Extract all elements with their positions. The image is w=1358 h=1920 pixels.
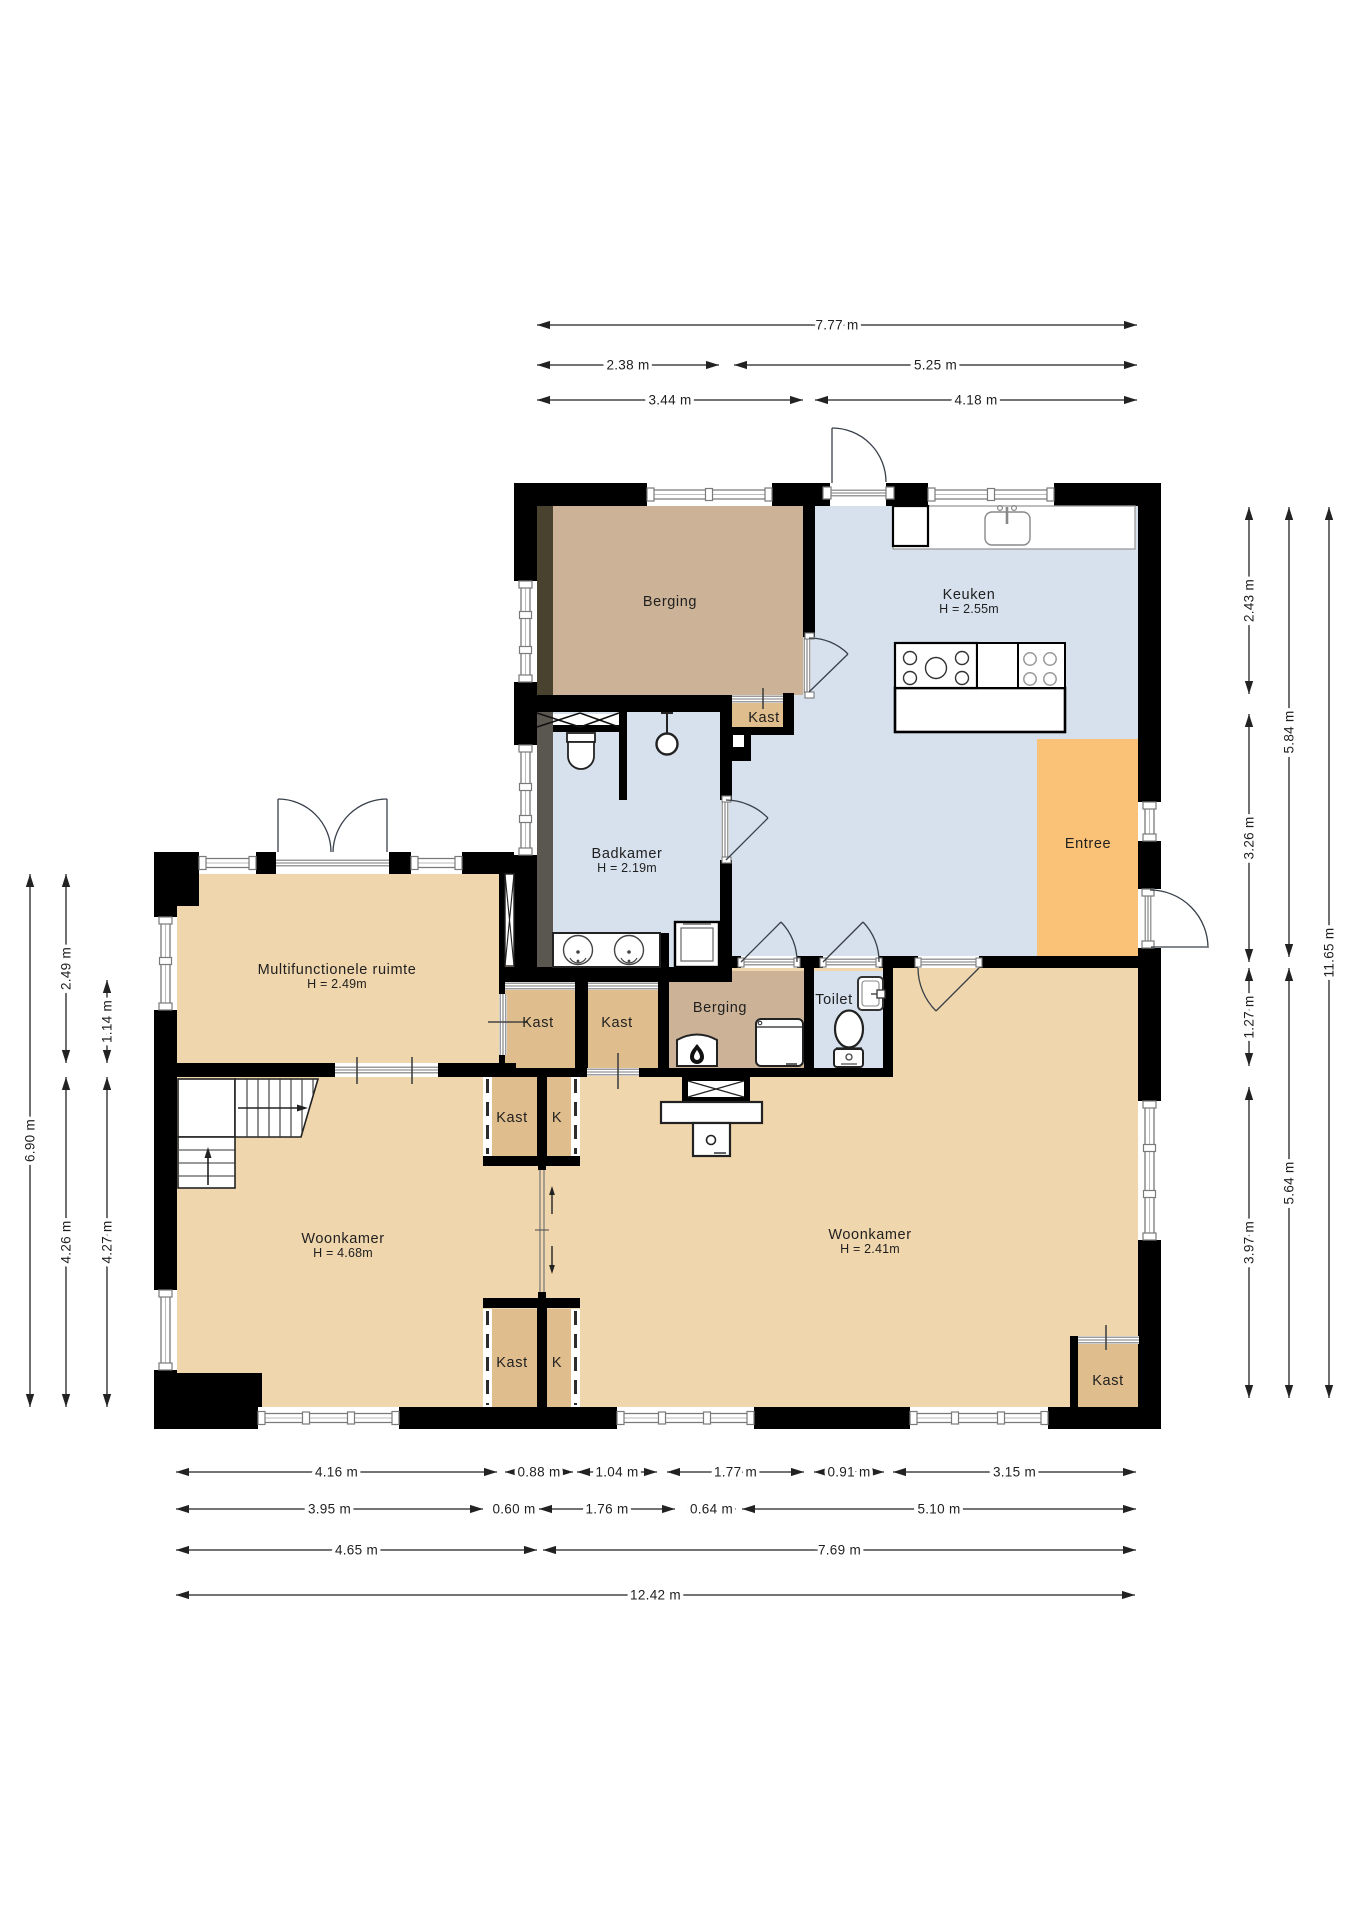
svg-text:3.44 m: 3.44 m [648, 393, 691, 408]
svg-text:Kast: Kast [496, 1110, 527, 1126]
svg-text:Berging: Berging [643, 594, 697, 610]
svg-text:5.10 m: 5.10 m [917, 1502, 960, 1517]
svg-text:5.25 m: 5.25 m [914, 358, 957, 373]
svg-text:5.64 m: 5.64 m [1282, 1161, 1297, 1204]
svg-text:12.42 m: 12.42 m [630, 1588, 681, 1603]
svg-text:1.14 m: 1.14 m [100, 1000, 115, 1043]
svg-text:3.26 m: 3.26 m [1242, 816, 1257, 859]
svg-text:Woonkamer: Woonkamer [828, 1227, 911, 1243]
svg-text:H = 2.55m: H = 2.55m [939, 602, 999, 616]
svg-text:2.38 m: 2.38 m [606, 358, 649, 373]
svg-text:11.65 m: 11.65 m [1322, 928, 1337, 978]
svg-text:Kast: Kast [1092, 1373, 1123, 1389]
svg-text:4.26 m: 4.26 m [59, 1220, 74, 1263]
svg-text:Badkamer: Badkamer [592, 846, 663, 862]
svg-text:0.88 m: 0.88 m [517, 1465, 560, 1480]
svg-text:4.27 m: 4.27 m [100, 1220, 115, 1263]
svg-text:K: K [552, 1355, 562, 1371]
svg-text:1.76 m: 1.76 m [585, 1502, 628, 1517]
svg-text:7.77 m: 7.77 m [815, 318, 858, 333]
svg-text:Kast: Kast [522, 1015, 553, 1031]
svg-text:3.97 m: 3.97 m [1242, 1221, 1257, 1264]
svg-text:0.91 m: 0.91 m [827, 1465, 870, 1480]
svg-text:7.69 m: 7.69 m [818, 1543, 861, 1558]
svg-text:H = 2.19m: H = 2.19m [597, 861, 657, 875]
svg-text:0.64 m: 0.64 m [690, 1502, 733, 1517]
svg-text:Toilet: Toilet [815, 992, 852, 1008]
svg-text:Woonkamer: Woonkamer [301, 1231, 384, 1247]
svg-text:Kast: Kast [496, 1355, 527, 1371]
svg-text:Multifunctionele ruimte: Multifunctionele ruimte [258, 962, 417, 978]
svg-text:2.49 m: 2.49 m [59, 947, 74, 990]
svg-text:0.60 m: 0.60 m [492, 1502, 535, 1517]
svg-text:1.04 m: 1.04 m [595, 1465, 638, 1480]
svg-text:Kast: Kast [748, 710, 779, 726]
svg-text:1.77 m: 1.77 m [714, 1465, 757, 1480]
svg-text:4.65 m: 4.65 m [335, 1543, 378, 1558]
svg-text:6.90 m: 6.90 m [23, 1119, 38, 1162]
svg-text:3.95 m: 3.95 m [308, 1502, 351, 1517]
svg-text:4.18 m: 4.18 m [954, 393, 997, 408]
svg-text:1.27 m: 1.27 m [1242, 995, 1257, 1038]
svg-text:H = 2.49m: H = 2.49m [307, 977, 367, 991]
svg-text:Entree: Entree [1065, 836, 1111, 852]
svg-text:H = 4.68m: H = 4.68m [313, 1246, 373, 1260]
svg-text:4.16 m: 4.16 m [315, 1465, 358, 1480]
svg-text:3.15 m: 3.15 m [993, 1465, 1036, 1480]
svg-text:H = 2.41m: H = 2.41m [840, 1242, 900, 1256]
svg-text:K: K [552, 1110, 562, 1126]
svg-text:Keuken: Keuken [943, 587, 996, 603]
svg-text:5.84 m: 5.84 m [1282, 710, 1297, 753]
svg-text:Kast: Kast [601, 1015, 632, 1031]
svg-text:2.43 m: 2.43 m [1242, 579, 1257, 622]
svg-text:Berging: Berging [693, 1000, 747, 1016]
